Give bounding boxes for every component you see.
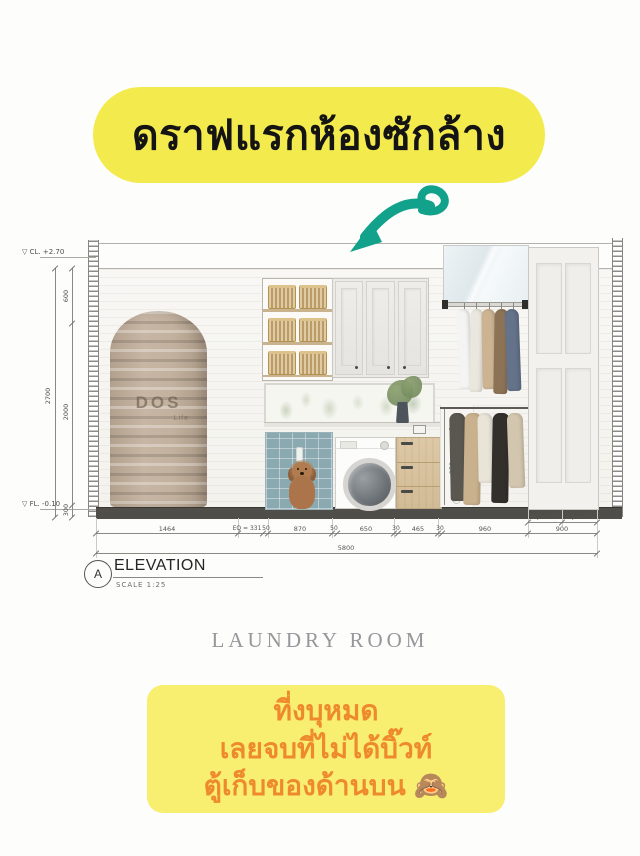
wicker-basket (268, 285, 296, 309)
top-banner: ดราฟแรกห้องซักล้าง (93, 87, 545, 183)
dim-label-900: 900 (556, 525, 568, 533)
dog-eye (305, 468, 307, 470)
tank-sub-label: Life (174, 415, 189, 422)
dim-label-overall-height: 2700 (44, 381, 52, 411)
post-image: DOS Life (0, 0, 640, 856)
elevation-bubble: A (84, 560, 112, 588)
drawer-handle (401, 466, 413, 469)
title-underline (113, 577, 263, 578)
bottom-banner-line: เลยจบที่ไม่ได้บิ๊วท์ (220, 731, 433, 768)
basket-shelf-unit (262, 278, 333, 381)
dim-label-50: 50 (262, 525, 270, 532)
washing-machine (335, 437, 396, 509)
dim-line-bottom (96, 533, 597, 534)
dog-body (289, 476, 315, 509)
door-panel (565, 263, 591, 354)
shower-wand (296, 447, 303, 462)
shelf-row (263, 345, 332, 377)
ext-line (562, 510, 563, 526)
bottom-banner-line: ที่งบุหมด (274, 693, 379, 730)
shelf-row (263, 312, 332, 345)
caption-laundry-room: LAUNDRY ROOM (0, 628, 640, 653)
plant-vase (396, 402, 409, 423)
drawer-gap (397, 486, 441, 487)
dim-label-eq450: EQ = 450 (531, 514, 560, 521)
drawer-handle (401, 442, 413, 445)
dim-line-left-outer (55, 268, 56, 517)
dim-label-960: 960 (479, 525, 491, 533)
cabinet-knob (355, 366, 358, 369)
clothes-rod-upper (443, 302, 527, 307)
dog-shower-tiles (265, 432, 333, 510)
arrow-loop (421, 189, 444, 211)
washer-door (343, 458, 396, 511)
door-panel (536, 368, 562, 483)
tank-brand-label: DOS (110, 393, 207, 413)
scale-label: SCALE 1:25 (116, 581, 166, 589)
dog-eye (297, 468, 299, 470)
door-panel (536, 263, 562, 354)
cabinet-door (398, 281, 427, 375)
cabinet-knob (403, 366, 406, 369)
clothes-rod-lower (440, 407, 532, 409)
ceiling-level-label: ▽ CL. +2.70 (22, 248, 64, 256)
elevation-title: ELEVATION (114, 557, 206, 575)
dim-line-left-inner (72, 268, 73, 517)
dim-label-total: 5800 (338, 544, 355, 552)
hanging-coat (507, 413, 526, 489)
wicker-basket (268, 318, 296, 342)
shelf-row (263, 279, 332, 312)
washer-dispenser (340, 441, 357, 449)
dim-label-eq450: EQ = 450 (566, 514, 595, 521)
drawer-cabinet (396, 437, 442, 509)
dog-nose (300, 472, 304, 475)
dim-label-1464: 1464 (159, 525, 176, 533)
wicker-basket (299, 285, 327, 309)
bottom-banner: ที่งบุหมด เลยจบที่ไม่ได้บิ๊วท์ ตู้เก็บขอ… (147, 685, 505, 813)
dim-label-870: 870 (294, 525, 306, 533)
wicker-basket (299, 351, 327, 375)
cabinet-knob (387, 366, 390, 369)
dim-line-rod (444, 409, 445, 505)
dim-tick (52, 514, 58, 520)
dim-label-eq331: EQ = 331 (233, 525, 262, 532)
hanging-shirt (505, 309, 522, 391)
dim-label-2000: 2000 (62, 397, 70, 427)
door-panel (565, 368, 591, 483)
dim-line-total (96, 553, 597, 554)
dog (285, 462, 319, 509)
dim-label-650: 650 (360, 525, 372, 533)
drawer-gap (397, 462, 441, 463)
right-wall (612, 238, 623, 517)
curved-arrow-icon (338, 182, 456, 260)
wall-outlet (413, 425, 426, 434)
washer-dial (380, 441, 389, 450)
wicker-basket (299, 318, 327, 342)
bubble-letter: A (94, 567, 102, 581)
dim-label-30: 30 (436, 525, 444, 532)
upper-cabinets (332, 278, 429, 378)
dim-label-30: 30 (392, 525, 400, 532)
water-tank: DOS Life (110, 311, 207, 507)
dim-label-600: 600 (62, 281, 70, 311)
left-wall (88, 240, 99, 517)
top-banner-text: ดราฟแรกห้องซักล้าง (132, 103, 506, 168)
cabinet-door (366, 281, 395, 375)
rod-bracket (442, 300, 448, 309)
bottom-banner-line: ตู้เก็บของด้านบน 🙈 (204, 768, 449, 805)
wicker-basket (268, 351, 296, 375)
dim-label-950: 950 (448, 453, 456, 483)
dim-label-50: 50 (330, 525, 338, 532)
dim-label-300: 300 (62, 495, 70, 525)
dim-label-465: 465 (412, 525, 424, 533)
cabinet-door (335, 281, 364, 375)
leader-line (40, 257, 96, 258)
door (528, 247, 599, 510)
drawer-handle (401, 490, 413, 493)
